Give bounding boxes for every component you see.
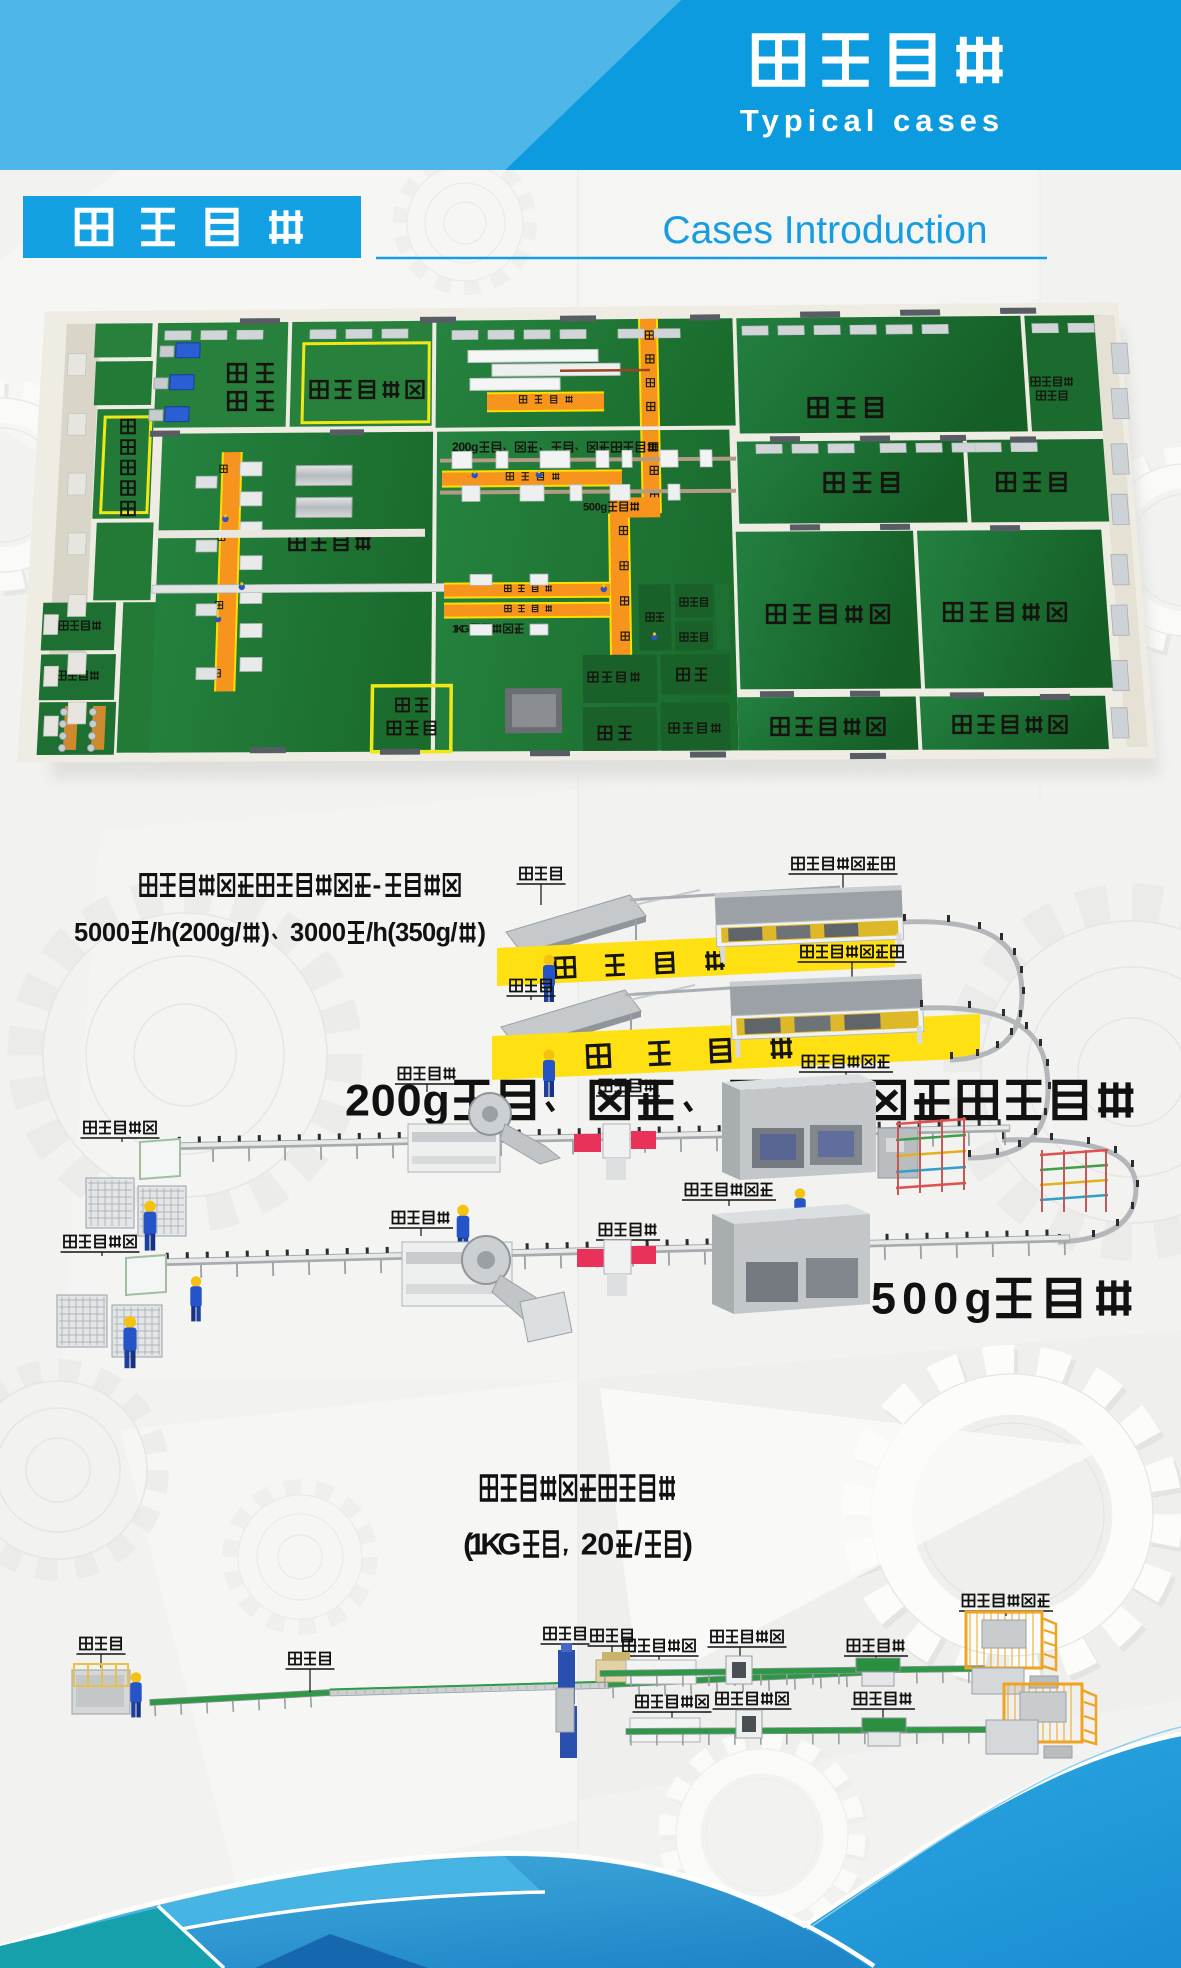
svg-text:(1KG: (1KG: [463, 1528, 521, 1562]
svg-text:/h(350g/: /h(350g/: [366, 919, 458, 947]
svg-text:): ): [478, 919, 487, 947]
svg-text:-: -: [373, 870, 382, 900]
svg-text:): ): [262, 919, 271, 947]
svg-text:1KG: 1KG: [452, 623, 470, 635]
svg-text:3000: 3000: [290, 919, 346, 947]
svg-text:200g: 200g: [345, 1074, 450, 1125]
svg-text:/h(200g/: /h(200g/: [150, 919, 242, 947]
svg-text:): ): [683, 1528, 693, 1562]
svg-text:5000: 5000: [74, 919, 130, 947]
svg-text:Cases Introduction: Cases Introduction: [662, 209, 987, 252]
svg-text:Typical cases: Typical cases: [740, 103, 1004, 138]
svg-text:/: /: [634, 1528, 643, 1562]
svg-text:500g: 500g: [583, 501, 607, 513]
svg-text:20: 20: [581, 1528, 615, 1562]
